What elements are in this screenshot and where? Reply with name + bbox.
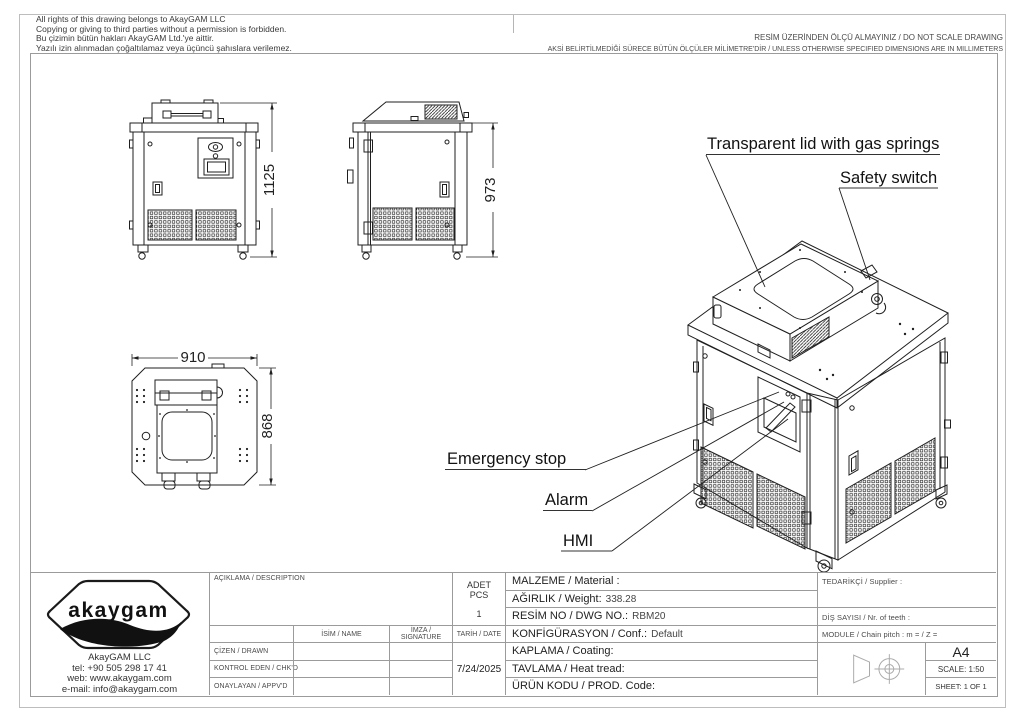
- description-cell: AÇIKLAMA / DESCRIPTION: [209, 572, 452, 625]
- configuration-value: Default: [647, 629, 683, 640]
- paper-size: A4: [952, 644, 969, 660]
- approved-signature-cell[interactable]: [389, 677, 452, 695]
- coating-label: KAPLAMA / Coating:: [512, 645, 614, 657]
- drawing-sheet: { "header": { "copyright_en": "All right…: [0, 0, 1024, 724]
- date-header-cell: TARİH / DATE: [452, 625, 505, 642]
- date-value: 7/24/2025: [457, 664, 502, 675]
- dwg-no-value: RBM20: [628, 611, 665, 622]
- approved-label: ONAYLAYAN / APPV'D: [210, 678, 293, 690]
- prod-code-cell: ÜRÜN KODU / PROD. Code:: [505, 677, 817, 695]
- projection-symbol-cell: [817, 642, 925, 695]
- coating-cell: KAPLAMA / Coating:: [505, 642, 817, 660]
- company-email[interactable]: e-mail: info@akaygam.com: [30, 685, 209, 696]
- dim-top-depth: 868: [259, 413, 276, 438]
- drawn-name-cell[interactable]: [293, 642, 389, 660]
- top-dimensions: [132, 354, 276, 485]
- dim-side-height: 973: [482, 177, 499, 202]
- weight-label: AĞIRLIK / Weight:: [512, 593, 602, 605]
- annotation-emergency-stop: Emergency stop: [447, 450, 566, 468]
- module-label: MODULE / Chain pitch : m = / Z =: [818, 626, 996, 639]
- name-header-label: İSİM / NAME: [321, 631, 361, 638]
- qty-cell: ADET PCS 1: [452, 572, 505, 625]
- approved-cell: ONAYLAYAN / APPV'D: [209, 677, 293, 695]
- dim-front-height: 1125: [261, 164, 278, 196]
- description-label: AÇIKLAMA / DESCRIPTION: [210, 573, 452, 582]
- signature-header-label: İMZA / SIGNATURE: [390, 627, 452, 641]
- logo-cell: akaygam AkayGAM LLC tel: +90 505 298 17 …: [30, 572, 209, 695]
- dwg-no-label: RESİM NO / DWG NO.:: [512, 610, 628, 622]
- akaygam-logo: akaygam: [30, 573, 209, 653]
- date-value-cell: 7/24/2025: [452, 642, 505, 695]
- configuration-label: KONFİGÜRASYON / Conf.:: [512, 628, 647, 640]
- drawn-signature-cell[interactable]: [389, 642, 452, 660]
- supplier-label: TEDARİKÇİ / Supplier :: [818, 573, 996, 586]
- annotation-transparent-lid: Transparent lid with gas springs: [707, 135, 939, 153]
- teeth-label: DİŞ SAYISI / Nr. of teeth :: [818, 608, 996, 622]
- first-angle-projection-icon: [818, 643, 925, 696]
- qty-value: 1: [476, 609, 481, 619]
- configuration-cell: KONFİGÜRASYON / Conf.:Default: [505, 625, 817, 642]
- heat-treat-cell: TAVLAMA / Heat tread:: [505, 660, 817, 677]
- checked-name-cell[interactable]: [293, 660, 389, 677]
- material-cell: MALZEME / Material :: [505, 572, 817, 590]
- material-label: MALZEME / Material :: [512, 575, 620, 587]
- company-web[interactable]: web: www.akaygam.com: [30, 674, 209, 685]
- supplier-cell: TEDARİKÇİ / Supplier :: [817, 572, 996, 607]
- name-header-cell: İSİM / NAME: [293, 625, 389, 642]
- dim-top-width: 910: [180, 349, 205, 366]
- annotation-safety-switch: Safety switch: [840, 169, 937, 187]
- scale-cell: SCALE: 1:50: [925, 660, 996, 677]
- sig-blank-cell: [209, 625, 293, 642]
- qty-label-2: PCS: [470, 590, 489, 600]
- company-contact: AkayGAM LLC tel: +90 505 298 17 41 web: …: [30, 653, 209, 695]
- teeth-cell: DİŞ SAYISI / Nr. of teeth :: [817, 607, 996, 625]
- weight-cell: AĞIRLIK / Weight:338.28: [505, 590, 817, 607]
- date-header-label: TARİH / DATE: [457, 631, 501, 638]
- paper-size-cell: A4: [925, 642, 996, 660]
- prod-code-label: ÜRÜN KODU / PROD. Code:: [512, 680, 655, 692]
- dwg-no-cell: RESİM NO / DWG NO.:RBM20: [505, 607, 817, 625]
- isometric-view: [688, 241, 951, 572]
- approved-name-cell[interactable]: [293, 677, 389, 695]
- checked-cell: KONTROL EDEN / CHK'D: [209, 660, 293, 677]
- sheet-number: SHEET: 1 OF 1: [935, 682, 986, 691]
- heat-treat-label: TAVLAMA / Heat tread:: [512, 663, 625, 675]
- annotation-hmi: HMI: [563, 532, 593, 550]
- drawn-label: ÇİZEN / DRAWN: [210, 643, 293, 655]
- side-view: [348, 102, 473, 259]
- company-name: AkayGAM LLC: [30, 653, 209, 664]
- annotation-alarm: Alarm: [545, 491, 588, 509]
- signature-header-cell: İMZA / SIGNATURE: [389, 625, 452, 642]
- corner-screw-dots: [136, 389, 248, 462]
- sheet-cell: SHEET: 1 OF 1: [925, 677, 996, 695]
- checked-signature-cell[interactable]: [389, 660, 452, 677]
- top-view: [132, 364, 257, 489]
- scale-value: SCALE: 1:50: [938, 665, 984, 674]
- qty-label-1: ADET: [467, 580, 491, 590]
- checked-label: KONTROL EDEN / CHK'D: [210, 661, 293, 672]
- module-cell: MODULE / Chain pitch : m = / Z =: [817, 625, 996, 642]
- logo-brand-text: akaygam: [68, 599, 168, 622]
- drawn-cell: ÇİZEN / DRAWN: [209, 642, 293, 660]
- weight-value: 338.28: [602, 594, 637, 605]
- front-view: [130, 100, 260, 259]
